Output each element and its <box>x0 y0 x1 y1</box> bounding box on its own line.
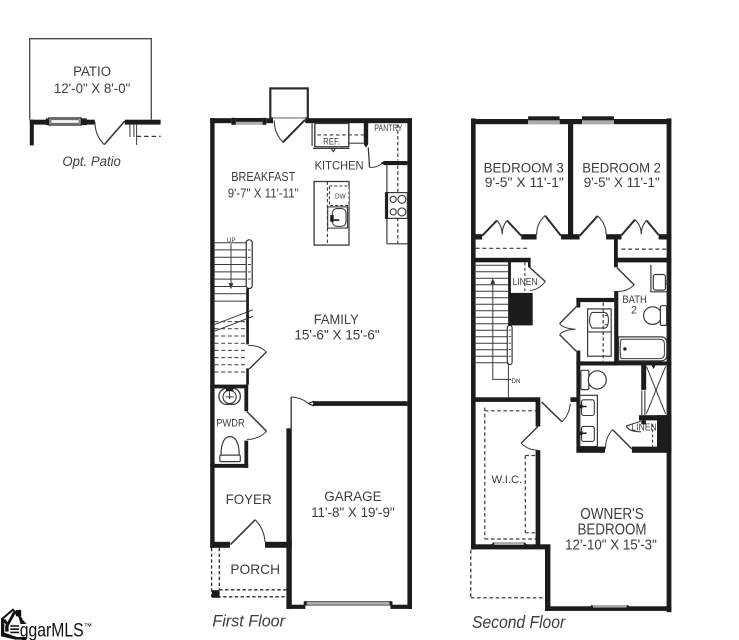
svg-text:11'-8" X 19'-9": 11'-8" X 19'-9" <box>311 505 395 520</box>
svg-text:BEDROOM 3: BEDROOM 3 <box>484 161 564 176</box>
svg-text:9'-5" X 11'-1": 9'-5" X 11'-1" <box>485 175 564 190</box>
svg-text:KITCHEN: KITCHEN <box>315 159 364 173</box>
svg-text:Opt. Patio: Opt. Patio <box>62 154 121 169</box>
svg-text:PATIO: PATIO <box>73 64 111 80</box>
svg-text:Second Floor: Second Floor <box>472 612 566 632</box>
svg-text:PANTRY: PANTRY <box>374 123 402 133</box>
svg-text:12'-10" X 15'-3": 12'-10" X 15'-3" <box>565 537 657 554</box>
svg-text:FAMILY: FAMILY <box>314 312 359 327</box>
svg-text:BEDROOM 2: BEDROOM 2 <box>582 161 661 176</box>
svg-text:DN: DN <box>512 378 521 385</box>
svg-text:LINEN: LINEN <box>513 277 538 288</box>
svg-text:2: 2 <box>631 304 637 316</box>
svg-text:First Floor: First Floor <box>212 612 286 631</box>
svg-text:REF.: REF. <box>323 137 340 147</box>
svg-text:BREAKFAST: BREAKFAST <box>231 170 295 184</box>
svg-text:LINEN: LINEN <box>631 423 656 434</box>
svg-text:DW: DW <box>335 191 346 200</box>
svg-text:15'-6" X 15'-6": 15'-6" X 15'-6" <box>294 328 379 343</box>
svg-text:FOYER: FOYER <box>226 492 272 507</box>
svg-text:PWDR: PWDR <box>216 418 245 430</box>
svg-text:W.I.C.: W.I.C. <box>492 474 523 486</box>
svg-text:ggarMLS: ggarMLS <box>20 620 84 640</box>
svg-text:12'-0" X 8'-0": 12'-0" X 8'-0" <box>54 81 130 97</box>
svg-text:GARAGE: GARAGE <box>324 489 381 505</box>
svg-text:9'-7" X 11'-11": 9'-7" X 11'-11" <box>228 186 299 201</box>
svg-text:PORCH: PORCH <box>230 562 280 577</box>
svg-text:9'-5" X 11'-1": 9'-5" X 11'-1" <box>584 175 660 190</box>
svg-text:™: ™ <box>84 622 92 631</box>
